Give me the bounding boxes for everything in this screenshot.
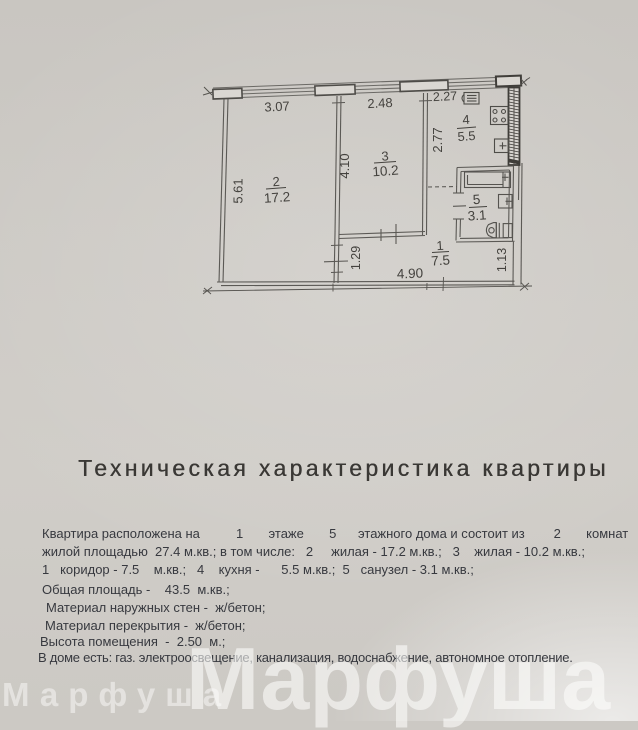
svg-text:1.29: 1.29: [349, 246, 363, 270]
svg-text:3: 3: [381, 148, 389, 163]
svg-text:2.48: 2.48: [367, 95, 393, 111]
svg-text:4.90: 4.90: [397, 266, 424, 282]
svg-text:3.1: 3.1: [467, 207, 487, 223]
svg-text:2: 2: [272, 174, 280, 189]
svg-text:5: 5: [472, 192, 481, 207]
svg-text:10.2: 10.2: [372, 163, 399, 180]
svg-text:4.10: 4.10: [337, 153, 352, 178]
svg-text:2.27: 2.27: [433, 89, 458, 104]
svg-text:7.5: 7.5: [431, 252, 451, 268]
svg-text:3.07: 3.07: [264, 98, 290, 114]
svg-text:1: 1: [436, 238, 444, 253]
svg-text:17.2: 17.2: [263, 189, 290, 206]
svg-text:4: 4: [462, 112, 470, 127]
svg-text:5.61: 5.61: [231, 178, 246, 203]
svg-text:1.13: 1.13: [495, 248, 509, 272]
svg-text:5.5: 5.5: [457, 128, 476, 144]
svg-text:2.77: 2.77: [430, 127, 445, 152]
